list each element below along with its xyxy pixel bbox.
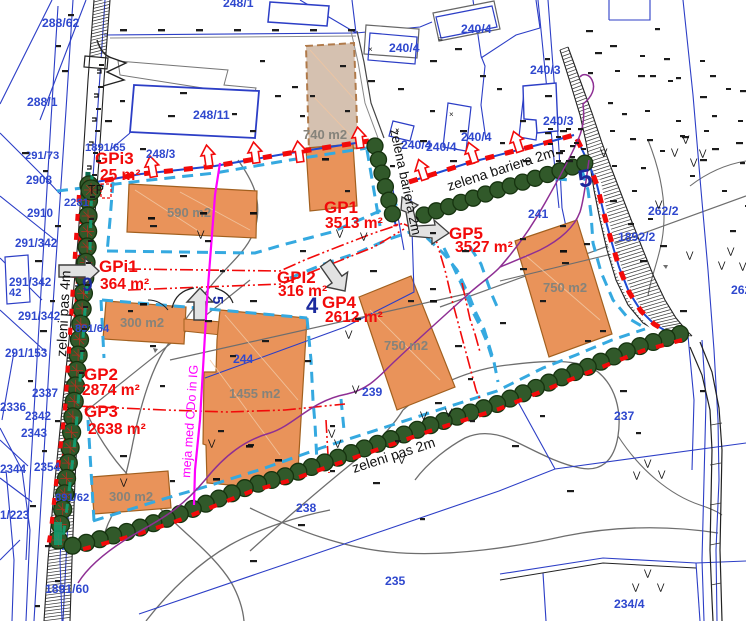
svg-text:≡: ≡: [438, 35, 443, 44]
svg-text:⋁: ⋁: [196, 229, 205, 239]
svg-text:240/3: 240/3: [530, 63, 561, 77]
svg-text:⋁: ⋁: [643, 458, 652, 468]
svg-text:1891/60: 1891/60: [45, 582, 89, 596]
svg-text:⋁: ⋁: [698, 148, 707, 158]
svg-text:240/4: 240/4: [426, 140, 457, 154]
svg-text:⋁: ⋁: [681, 134, 690, 144]
svg-text:1455 m2: 1455 m2: [229, 386, 280, 401]
svg-text:×: ×: [368, 45, 373, 54]
svg-text:750 m2: 750 m2: [543, 280, 587, 295]
svg-text:GP3: GP3: [84, 402, 118, 421]
svg-text:⋁: ⋁: [726, 246, 735, 256]
svg-text:3513 m²: 3513 m²: [325, 215, 383, 232]
svg-text:237: 237: [614, 409, 635, 423]
svg-text:GPi3: GPi3: [95, 149, 134, 168]
svg-text:288/62: 288/62: [42, 16, 79, 30]
svg-text:1892/2: 1892/2: [618, 230, 655, 244]
svg-text:291/73: 291/73: [25, 150, 59, 162]
svg-text:238: 238: [296, 501, 317, 515]
svg-text:891/62: 891/62: [55, 492, 89, 504]
svg-text:⋁: ⋁: [397, 454, 406, 464]
svg-text:1/223: 1/223: [0, 509, 30, 522]
svg-text:GPi1: GPi1: [99, 257, 138, 276]
svg-text:262/2: 262/2: [648, 204, 679, 218]
svg-text:240/4: 240/4: [389, 41, 420, 55]
svg-text:288/1: 288/1: [27, 95, 58, 109]
svg-text:⋁: ⋁: [335, 228, 344, 238]
svg-text:42: 42: [9, 287, 21, 299]
svg-text:2908: 2908: [26, 174, 53, 187]
svg-text:⋁: ⋁: [351, 384, 360, 394]
svg-text:316 m²: 316 m²: [278, 283, 327, 300]
svg-text:⋁: ⋁: [654, 199, 663, 209]
svg-text:⋁: ⋁: [689, 157, 698, 167]
svg-text:TP: TP: [88, 183, 104, 197]
svg-text:3527 m²: 3527 m²: [455, 239, 513, 256]
svg-text:300 m2: 300 m2: [109, 489, 153, 504]
svg-text:300 m2: 300 m2: [120, 315, 164, 330]
svg-text:⋁: ⋁: [419, 410, 428, 420]
svg-text:244: 244: [233, 352, 254, 366]
svg-text:750 m2: 750 m2: [384, 338, 428, 353]
svg-text:234/4: 234/4: [614, 597, 645, 611]
svg-text:⋁: ⋁: [327, 428, 336, 438]
svg-text:2343: 2343: [21, 427, 48, 440]
svg-text:⋁: ⋁: [599, 147, 608, 157]
svg-text:241: 241: [528, 207, 549, 221]
svg-text:248/3: 248/3: [146, 148, 176, 161]
svg-text:291/153: 291/153: [5, 347, 48, 360]
svg-text:25 m²: 25 m²: [100, 167, 141, 184]
svg-text:⋁: ⋁: [632, 470, 641, 480]
svg-text:2354: 2354: [34, 461, 61, 474]
svg-text:⋁: ⋁: [657, 469, 666, 479]
svg-text:239: 239: [362, 385, 383, 399]
svg-text:2910: 2910: [27, 207, 54, 220]
svg-text:2344: 2344: [0, 463, 27, 476]
svg-text:891/64: 891/64: [75, 323, 110, 335]
svg-text:⋁: ⋁: [717, 260, 726, 270]
svg-text:240/3: 240/3: [543, 114, 574, 128]
svg-text:⋁: ⋁: [738, 261, 746, 271]
svg-text:⋁: ⋁: [333, 438, 342, 448]
svg-text:⋁: ⋁: [656, 582, 665, 592]
svg-text:2342: 2342: [25, 410, 52, 423]
svg-text:⋁: ⋁: [685, 250, 694, 260]
svg-text:235: 235: [385, 574, 406, 588]
svg-text:364 m²: 364 m²: [100, 276, 149, 293]
svg-text:262: 262: [731, 283, 746, 297]
svg-text:248/11: 248/11: [193, 108, 230, 122]
svg-text:⋁: ⋁: [119, 477, 128, 487]
svg-text:740 m2: 740 m2: [303, 127, 347, 142]
svg-text:×: ×: [449, 110, 454, 119]
svg-text:5: 5: [209, 296, 226, 304]
svg-text:⋁: ⋁: [359, 231, 368, 241]
svg-text:⋁: ⋁: [344, 329, 353, 339]
svg-text:⋁: ⋁: [207, 438, 216, 448]
svg-text:⋁: ⋁: [631, 582, 640, 592]
svg-text:⋁: ⋁: [643, 568, 652, 578]
svg-text:⋁: ⋁: [444, 407, 453, 417]
svg-text:⋁: ⋁: [670, 147, 679, 157]
svg-text:248/1: 248/1: [223, 0, 254, 10]
svg-text:2638 m²: 2638 m²: [88, 421, 146, 438]
svg-text:2337: 2337: [32, 387, 58, 400]
svg-text:240/4: 240/4: [461, 22, 492, 36]
svg-text:291/342: 291/342: [15, 237, 58, 250]
svg-text:2336: 2336: [0, 401, 27, 414]
svg-text:2874 m²: 2874 m²: [82, 382, 140, 399]
svg-text:2281: 2281: [64, 197, 89, 209]
svg-text:2612 m²: 2612 m²: [325, 309, 383, 326]
